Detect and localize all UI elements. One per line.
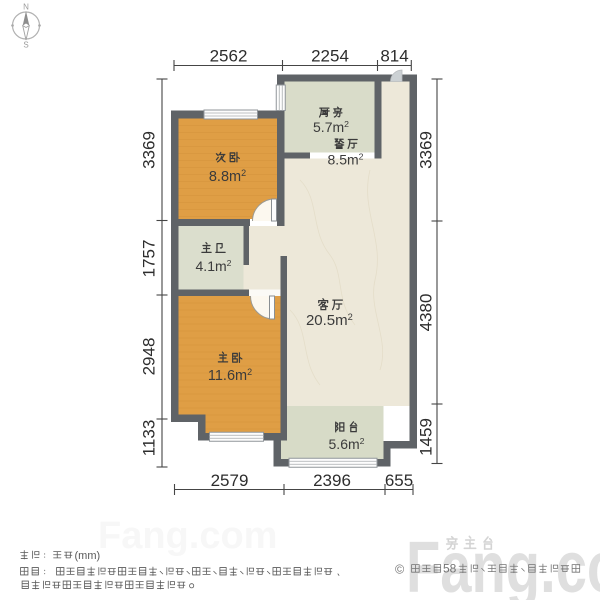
svg-text:Fang.com: Fang.com — [98, 515, 277, 557]
svg-text:2396: 2396 — [313, 471, 351, 490]
svg-text:20.5m2: 20.5m2 — [306, 312, 353, 329]
svg-text:1459: 1459 — [417, 418, 436, 456]
svg-text:(mm): (mm) — [75, 550, 101, 562]
svg-text:1133: 1133 — [140, 420, 159, 457]
svg-text:Fang.com: Fang.com — [406, 527, 600, 600]
svg-text:8.8m2: 8.8m2 — [209, 168, 246, 185]
svg-text:2254: 2254 — [311, 47, 349, 66]
svg-text:58: 58 — [443, 562, 457, 576]
svg-text:2579: 2579 — [211, 471, 249, 490]
svg-text:5.7m2: 5.7m2 — [313, 119, 349, 135]
svg-text:1757: 1757 — [140, 240, 159, 278]
svg-text:4380: 4380 — [417, 294, 436, 332]
svg-text:S: S — [23, 41, 28, 50]
svg-text:2562: 2562 — [210, 47, 248, 66]
svg-text:11.6m2: 11.6m2 — [208, 367, 252, 384]
svg-text:©: © — [395, 563, 405, 577]
svg-text:3369: 3369 — [417, 131, 436, 169]
svg-text:N: N — [23, 3, 29, 12]
svg-text:2948: 2948 — [140, 338, 159, 376]
svg-text:8.5m2: 8.5m2 — [328, 152, 364, 168]
svg-text:655: 655 — [385, 471, 413, 490]
svg-text:5.6m2: 5.6m2 — [329, 436, 365, 452]
svg-text:814: 814 — [380, 47, 408, 66]
svg-text:3369: 3369 — [140, 131, 159, 169]
svg-text:4.1m2: 4.1m2 — [196, 258, 232, 274]
